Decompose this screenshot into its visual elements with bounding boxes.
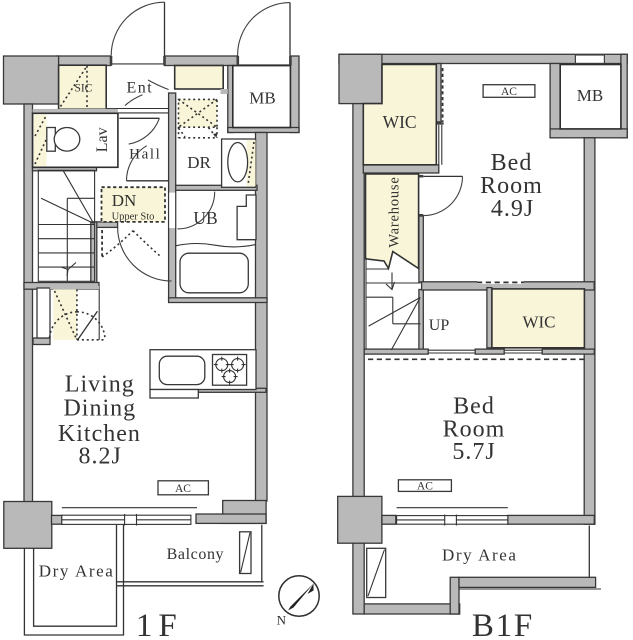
svg-text:B1F: B1F (472, 608, 534, 640)
svg-text:AC: AC (501, 86, 517, 98)
svg-text:8.2J: 8.2J (79, 444, 122, 470)
svg-text:N: N (277, 613, 287, 628)
svg-text:WIC: WIC (522, 312, 555, 331)
svg-text:MB: MB (577, 86, 603, 105)
svg-text:UP: UP (429, 317, 450, 334)
svg-text:DR: DR (187, 153, 211, 172)
svg-text:Living: Living (65, 372, 135, 398)
svg-text:Upper Sto: Upper Sto (112, 212, 155, 223)
svg-text:Dry Area: Dry Area (442, 546, 518, 565)
svg-text:Dry Area: Dry Area (39, 562, 115, 581)
svg-text:AC: AC (175, 483, 191, 495)
svg-text:AC: AC (417, 481, 433, 493)
svg-text:5.7J: 5.7J (452, 439, 495, 465)
svg-text:Dining: Dining (63, 396, 136, 422)
svg-text:1F: 1F (136, 608, 183, 640)
svg-text:UB: UB (193, 208, 217, 228)
svg-text:Warehouse: Warehouse (387, 176, 403, 247)
svg-text:DN: DN (112, 191, 137, 210)
svg-text:Hall: Hall (129, 147, 161, 163)
svg-text:WIC: WIC (383, 112, 417, 132)
svg-text:MB: MB (249, 89, 275, 108)
svg-text:Lav: Lav (94, 127, 111, 152)
svg-text:Ent: Ent (126, 80, 153, 97)
svg-text:SIC: SIC (74, 83, 92, 95)
svg-text:4.9J: 4.9J (491, 196, 534, 222)
svg-text:Balcony: Balcony (167, 546, 225, 563)
